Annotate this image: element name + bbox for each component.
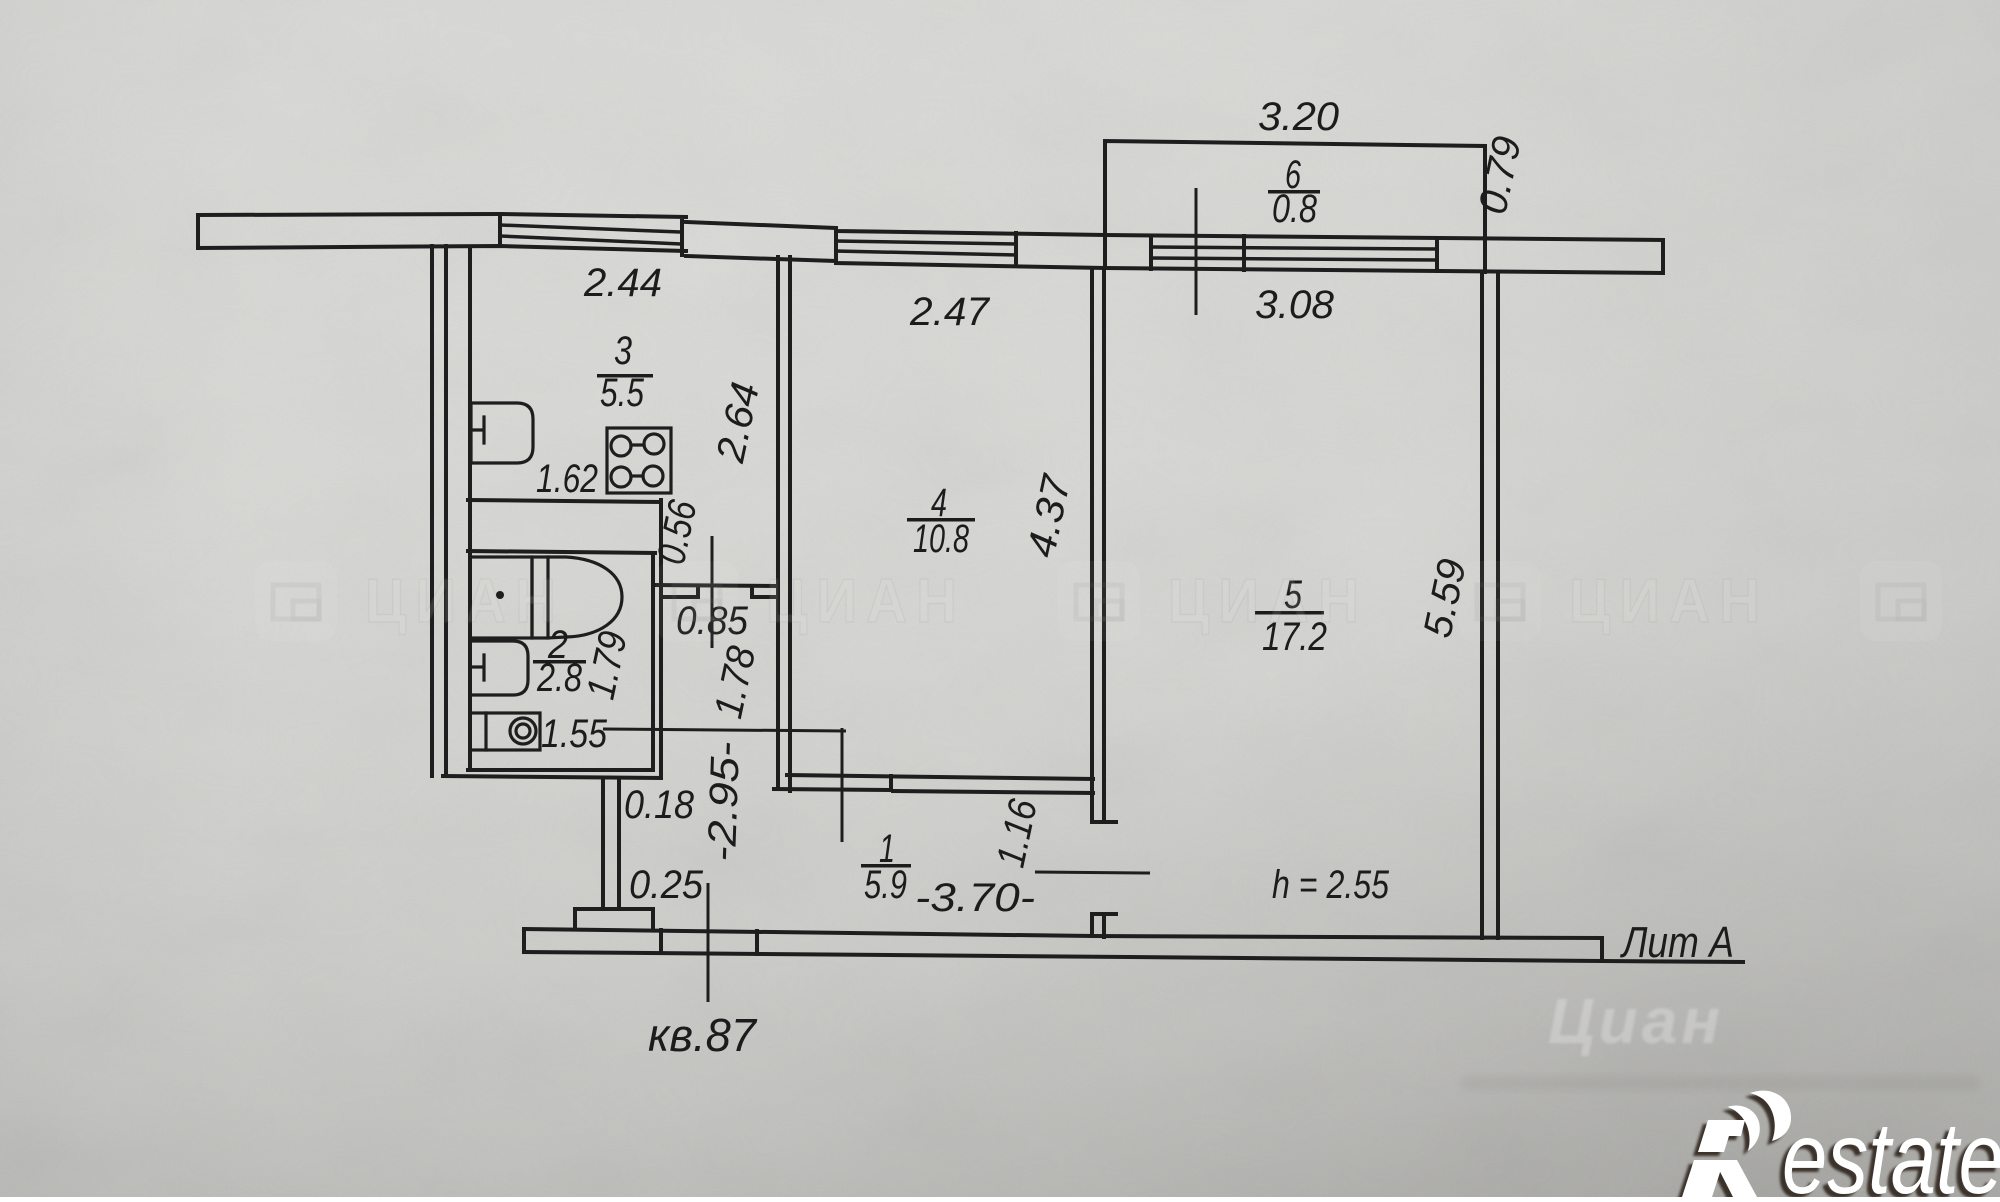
svg-text:3.08: 3.08 [1255,283,1335,327]
svg-text:Лит А: Лит А [1619,918,1734,967]
svg-text:5.5: 5.5 [600,371,645,415]
svg-text:3: 3 [614,329,632,373]
svg-text:3.20: 3.20 [1258,95,1339,139]
svg-text:5.9: 5.9 [864,863,907,907]
svg-text:0.8: 0.8 [1272,187,1318,231]
svg-text:2.8: 2.8 [536,656,582,700]
svg-text:кв.87: кв.87 [648,1009,757,1061]
svg-text:1.55: 1.55 [541,712,608,756]
svg-text:1.62: 1.62 [536,457,598,501]
svg-text:-2.95-: -2.95- [700,741,748,862]
svg-text:ЦИАН: ЦИАН [1168,567,1368,636]
svg-text:2.47: 2.47 [909,290,991,334]
svg-text:0.18: 0.18 [624,783,695,827]
svg-text:ЦИАН: ЦИАН [766,567,966,636]
svg-text:estate: estate [1782,1101,2000,1197]
svg-text:0.25: 0.25 [629,863,704,907]
svg-text:10.8: 10.8 [913,517,970,561]
svg-text:ЦИАН: ЦИАН [1569,567,1769,636]
svg-text:-3.70-: -3.70- [915,876,1035,920]
svg-text:2.44: 2.44 [583,261,662,305]
svg-text:ЦИАН: ЦИАН [365,567,565,636]
svg-text:Циан: Циан [1548,985,1724,1057]
svg-text:h = 2.55: h = 2.55 [1272,863,1390,907]
